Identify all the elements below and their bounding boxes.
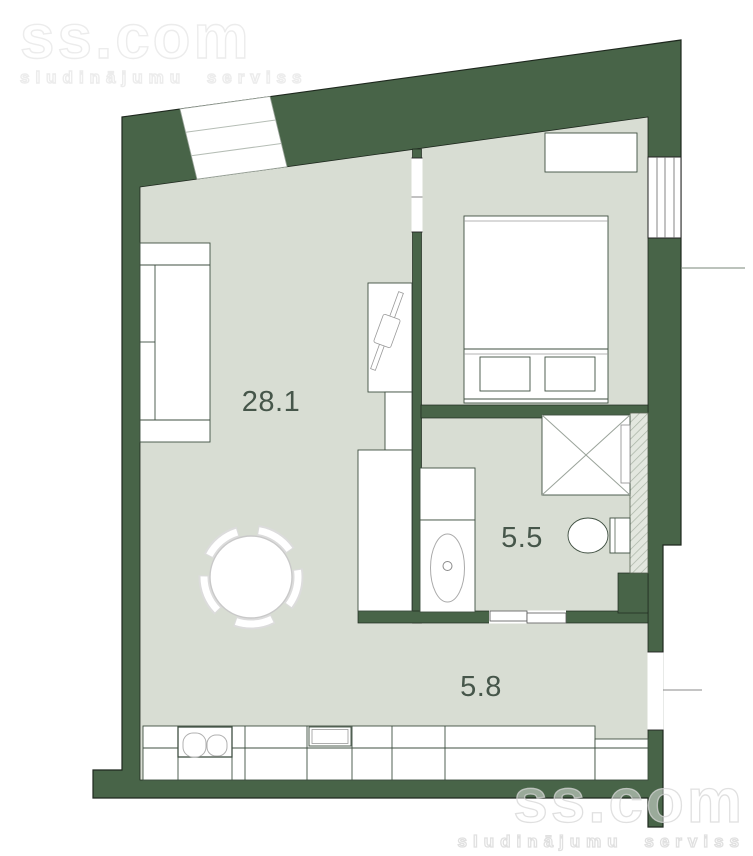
shower (542, 415, 630, 495)
tv-stand (365, 283, 412, 392)
room-label-bathroom: 5.5 (501, 522, 543, 554)
bathroom-door (489, 611, 566, 624)
bed (464, 216, 608, 403)
floor-plan-page: ss.com sludinājumu serviss (0, 0, 753, 856)
wall-bathroom-corner (618, 573, 648, 613)
shower-glass (621, 425, 630, 483)
pillow-right (545, 357, 595, 391)
pillow-left (480, 357, 530, 391)
window-top-wall (180, 97, 287, 180)
dining-table (210, 536, 292, 618)
cabinet-low (385, 392, 412, 450)
vent-shaft (630, 413, 648, 573)
room-label-hallway: 5.8 (460, 671, 502, 703)
tall-cabinet-fridge (358, 450, 412, 611)
toilet (568, 518, 630, 553)
kitchen-counter (143, 726, 648, 780)
bedroom-door-opening (412, 158, 423, 232)
entrance-door-opening (648, 652, 703, 730)
room-label-living: 28.1 (242, 386, 300, 418)
kitchen-sink (178, 727, 232, 757)
stove (309, 727, 351, 746)
floor-plan-image: 28.1 5.5 5.8 (0, 0, 753, 856)
dresser (545, 133, 637, 172)
sofa (140, 243, 210, 442)
vanity-sink (420, 468, 475, 612)
